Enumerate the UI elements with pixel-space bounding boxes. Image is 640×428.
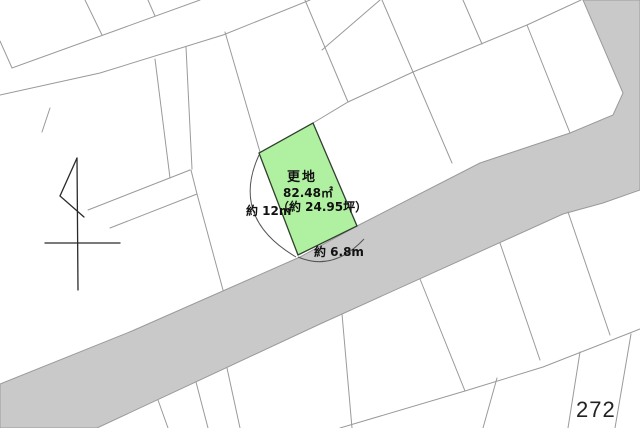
plot-bottom-dimension-label: 約 6.8m — [314, 246, 364, 258]
plot-area-m2-label: 82.48㎡ — [283, 187, 333, 199]
map-canvas — [0, 0, 640, 428]
cadastral-map: 更地 82.48㎡ （約 24.95坪） 約 12m 約 6.8m 272 — [0, 0, 640, 428]
page-number: 272 — [576, 399, 616, 421]
plot-left-dimension-label: 約 12m — [246, 205, 291, 217]
plot-status-label: 更地 — [287, 171, 317, 184]
north-arrow-icon — [45, 158, 120, 290]
